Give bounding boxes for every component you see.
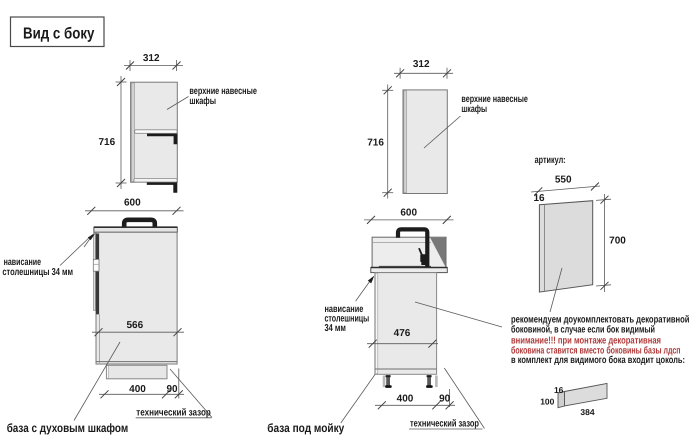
svg-text:400: 400 <box>129 384 146 395</box>
svg-text:боковиной, в случае если бок в: боковиной, в случае если бок видимый <box>511 325 655 336</box>
svg-text:700: 700 <box>609 236 626 247</box>
svg-text:716: 716 <box>367 138 384 149</box>
svg-text:технический зазор: технический зазор <box>410 419 479 430</box>
svg-text:16: 16 <box>533 193 545 204</box>
svg-text:в комплект для видимого бока в: в комплект для видимого бока входит цоко… <box>511 355 685 366</box>
svg-text:600: 600 <box>400 207 417 218</box>
svg-text:100: 100 <box>540 396 554 406</box>
svg-text:476: 476 <box>394 328 411 339</box>
svg-text:база под мойку: база под мойку <box>267 421 344 435</box>
svg-text:312: 312 <box>413 59 430 70</box>
svg-text:90: 90 <box>166 384 178 395</box>
svg-text:артикул:: артикул: <box>535 155 566 166</box>
svg-text:566: 566 <box>126 320 143 331</box>
svg-text:технический зазор: технический зазор <box>136 407 211 418</box>
svg-text:550: 550 <box>555 174 572 185</box>
svg-text:90: 90 <box>439 394 451 405</box>
svg-text:384: 384 <box>580 407 594 417</box>
svg-text:столешницы 34 мм: столешницы 34 мм <box>2 267 73 278</box>
svg-text:шкафы: шкафы <box>461 104 487 115</box>
svg-text:Вид с боку: Вид с боку <box>23 26 94 43</box>
svg-text:16: 16 <box>554 385 564 395</box>
svg-text:34 мм: 34 мм <box>325 323 346 334</box>
svg-text:600: 600 <box>124 198 141 209</box>
svg-text:база с духовым шкафом: база с духовым шкафом <box>7 421 129 435</box>
svg-text:312: 312 <box>143 53 160 64</box>
svg-text:шкафы: шкафы <box>189 96 216 107</box>
svg-text:400: 400 <box>397 394 414 405</box>
svg-text:716: 716 <box>98 137 115 148</box>
